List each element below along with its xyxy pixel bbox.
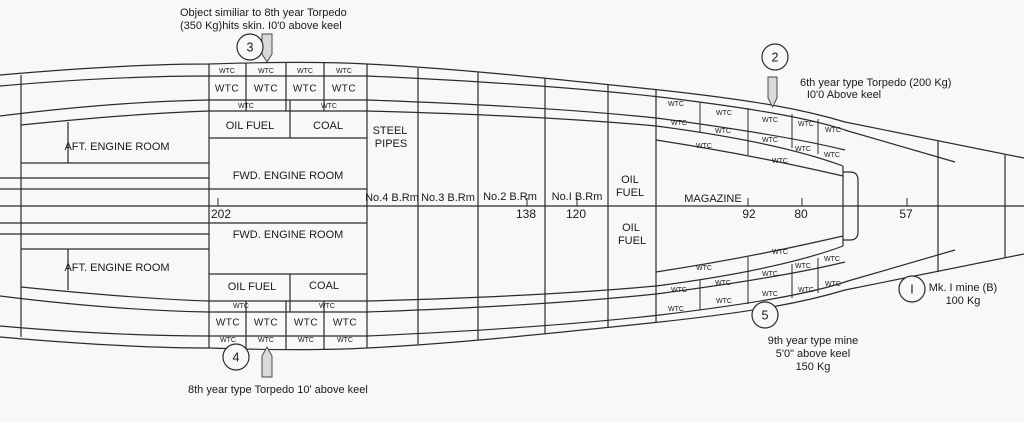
note3-line1: Object similiar to 8th year Torpedo bbox=[180, 7, 347, 19]
wtc-label: WTC bbox=[258, 337, 274, 344]
oil-col-bottom-label-line2: FUEL bbox=[618, 235, 646, 247]
wtc-label: WTC bbox=[798, 287, 814, 294]
torpedo-symbol-4 bbox=[262, 347, 272, 377]
magazine-label: MAGAZINE bbox=[684, 193, 741, 205]
wtc-label: WTC bbox=[716, 298, 732, 305]
oil-fuel-top-label: OIL FUEL bbox=[226, 120, 275, 132]
wtc-label: WTC bbox=[333, 318, 357, 329]
wtc-label: WTC bbox=[825, 281, 841, 288]
frame-number: 80 bbox=[794, 207, 808, 221]
wtc-label: WTC bbox=[762, 117, 778, 124]
note2-line2: I0'0 Above keel bbox=[807, 89, 881, 101]
boiler-room-3-label: No.3 B.Rm bbox=[421, 192, 475, 204]
steel-pipes-label-line2: PIPES bbox=[375, 138, 407, 150]
wtc-label: WTC bbox=[795, 263, 811, 270]
diagram-canvas: 3 2 4 5 I Object similiar to 8th year To… bbox=[0, 0, 1024, 422]
note2-line1: 6th year type Torpedo (200 Kg) bbox=[800, 77, 951, 89]
ship-damage-trial-diagram: 3 2 4 5 I Object similiar to 8th year To… bbox=[0, 0, 1024, 422]
wtc-label: WTC bbox=[671, 120, 687, 127]
wtc-label: WTC bbox=[215, 84, 239, 95]
boiler-room-1-label: No.I B.Rm bbox=[552, 191, 603, 203]
wtc-label: WTC bbox=[795, 146, 811, 153]
boiler-room-4-label: No.4 B.Rm bbox=[365, 192, 419, 204]
wtc-label: WTC bbox=[319, 303, 335, 310]
marker-number-2: 2 bbox=[772, 50, 779, 64]
marker-number-5: 5 bbox=[762, 308, 769, 322]
wtc-label: WTC bbox=[332, 84, 356, 95]
frame-number: 57 bbox=[899, 207, 913, 221]
longitudinal-5-top bbox=[656, 140, 843, 176]
noteI-line2: 100 Kg bbox=[946, 295, 981, 307]
marker-number-I: I bbox=[910, 282, 913, 296]
wtc-label: WTC bbox=[297, 68, 313, 75]
wtc-label: WTC bbox=[668, 101, 684, 108]
frame-number: 202 bbox=[211, 207, 231, 221]
wtc-label: WTC bbox=[715, 280, 731, 287]
note5-line2: 5'0" above keel bbox=[776, 348, 851, 360]
wtc-label: WTC bbox=[825, 127, 841, 134]
wtc-label: WTC bbox=[238, 103, 254, 110]
marker-number-4: 4 bbox=[233, 350, 240, 364]
wtc-label: WTC bbox=[772, 158, 788, 165]
wtc-label: WTC bbox=[219, 68, 235, 75]
frame-number-labels: 202138120928057 bbox=[211, 207, 913, 221]
wtc-label: WTC bbox=[220, 337, 236, 344]
wtc-label: WTC bbox=[762, 291, 778, 298]
marker-number-3: 3 bbox=[247, 40, 254, 54]
frame-number: 120 bbox=[566, 207, 586, 221]
wtc-label: WTC bbox=[715, 128, 731, 135]
wtc-label: WTC bbox=[294, 318, 318, 329]
coal-top-label: COAL bbox=[313, 120, 343, 132]
aft-engine-room-bottom-label: AFT. ENGINE ROOM bbox=[64, 262, 169, 274]
wtc-label: WTC bbox=[824, 256, 840, 263]
note3-line2: (350 Kg)hits skin. I0'0 above keel bbox=[180, 20, 342, 32]
note4-line1: 8th year type Torpedo 10' above keel bbox=[188, 384, 368, 396]
noteI-line1: Mk. I mine (B) bbox=[929, 282, 997, 294]
wtc-label: WTC bbox=[216, 318, 240, 329]
longitudinal-4-top bbox=[21, 111, 843, 166]
wtc-label: WTC bbox=[762, 271, 778, 278]
wtc-label: WTC bbox=[293, 84, 317, 95]
oil-col-top-label-line2: FUEL bbox=[616, 187, 644, 199]
wtc-label: WTC bbox=[762, 137, 778, 144]
steel-pipes-label-line1: STEEL bbox=[373, 125, 408, 137]
wtc-label: WTC bbox=[337, 337, 353, 344]
wtc-label: WTC bbox=[824, 152, 840, 159]
coal-bottom-label: COAL bbox=[309, 280, 339, 292]
note5-line1: 9th year type mine bbox=[768, 335, 859, 347]
oil-fuel-bottom-label: OIL FUEL bbox=[228, 281, 277, 293]
torpedo-symbol-2 bbox=[768, 77, 777, 107]
wtc-label: WTC bbox=[254, 84, 278, 95]
wtc-label: WTC bbox=[336, 68, 352, 75]
frame-number: 138 bbox=[516, 207, 536, 221]
wtc-label: WTC bbox=[254, 318, 278, 329]
longitudinal-5-bottom bbox=[656, 236, 843, 272]
wtc-label: WTC bbox=[772, 249, 788, 256]
wtc-label: WTC bbox=[321, 103, 337, 110]
wtc-label: WTC bbox=[696, 143, 712, 150]
wtc-label: WTC bbox=[696, 265, 712, 272]
frame-number: 92 bbox=[742, 207, 756, 221]
wtc-label: WTC bbox=[668, 306, 684, 313]
wtc-label: WTC bbox=[716, 110, 732, 117]
wtc-label: WTC bbox=[233, 303, 249, 310]
wtc-label: WTC bbox=[258, 68, 274, 75]
fwd-engine-room-bottom-label: FWD. ENGINE ROOM bbox=[233, 229, 344, 241]
aft-engine-room-top-label: AFT. ENGINE ROOM bbox=[64, 141, 169, 153]
oil-col-bottom-label-line1: OIL bbox=[622, 222, 640, 234]
boiler-room-2-label: No.2 B.Rm bbox=[483, 191, 537, 203]
note5-line3: 150 Kg bbox=[796, 361, 831, 373]
wtc-label: WTC bbox=[798, 121, 814, 128]
wtc-label: WTC bbox=[671, 287, 687, 294]
fwd-engine-room-top-label: FWD. ENGINE ROOM bbox=[233, 170, 344, 182]
oil-col-top-label-line1: OIL bbox=[621, 174, 639, 186]
wtc-label: WTC bbox=[298, 337, 314, 344]
